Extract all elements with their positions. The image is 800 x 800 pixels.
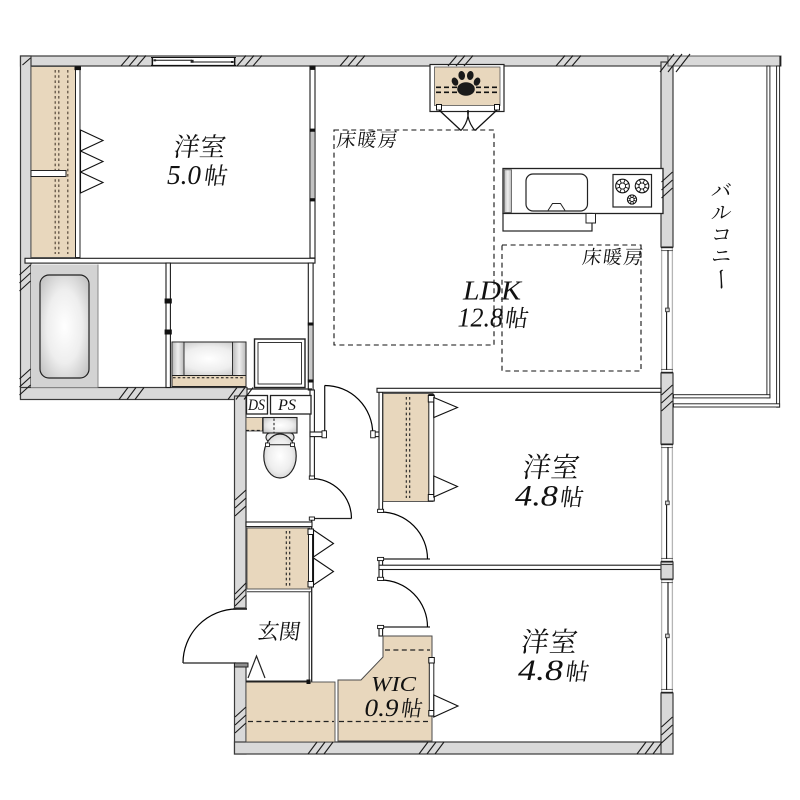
svg-text:4.8: 4.8	[515, 480, 558, 513]
svg-text:WIC: WIC	[371, 672, 417, 696]
svg-text:5.0: 5.0	[167, 160, 202, 190]
svg-text:DS: DS	[247, 397, 265, 414]
svg-text:PS: PS	[277, 397, 296, 414]
svg-text:4.8: 4.8	[518, 654, 563, 687]
svg-text:0.9: 0.9	[365, 695, 400, 722]
svg-text:12.8: 12.8	[458, 302, 504, 333]
